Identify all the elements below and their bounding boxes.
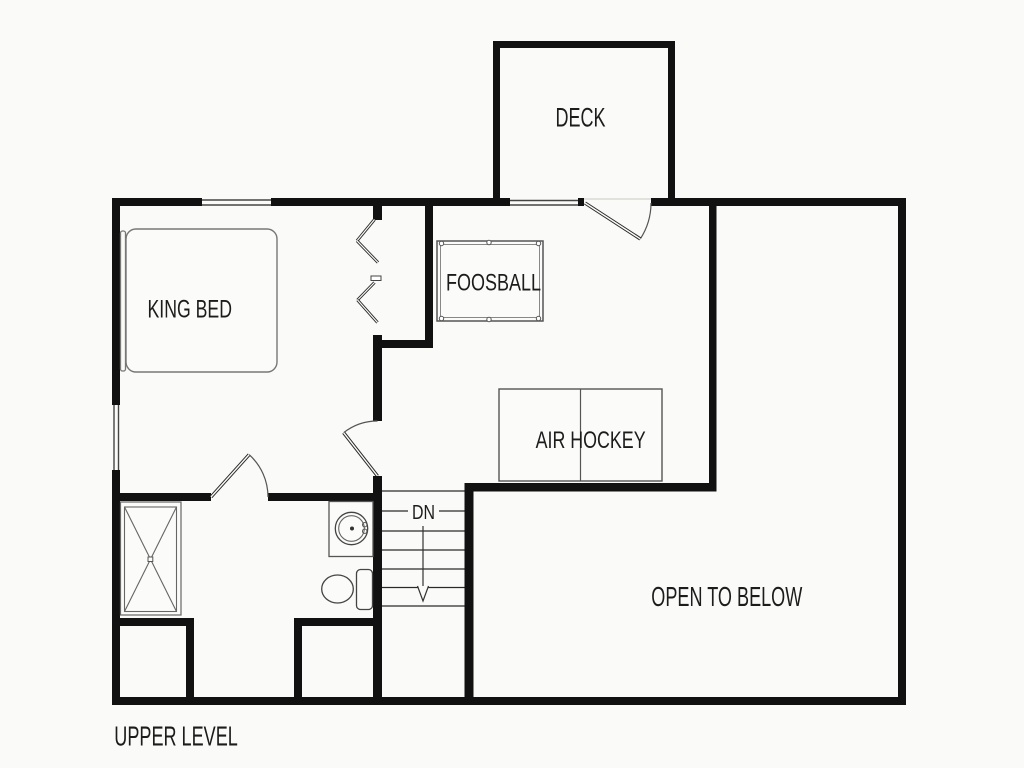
svg-text:AIR HOCKEY: AIR HOCKEY <box>536 427 646 454</box>
svg-text:FOOSBALL: FOOSBALL <box>446 269 541 296</box>
svg-text:UPPER LEVEL: UPPER LEVEL <box>114 721 238 752</box>
svg-text:DECK: DECK <box>556 103 606 133</box>
svg-text:KING BED: KING BED <box>148 296 233 324</box>
svg-text:DN: DN <box>412 502 435 524</box>
svg-text:OPEN TO BELOW: OPEN TO BELOW <box>651 581 802 612</box>
